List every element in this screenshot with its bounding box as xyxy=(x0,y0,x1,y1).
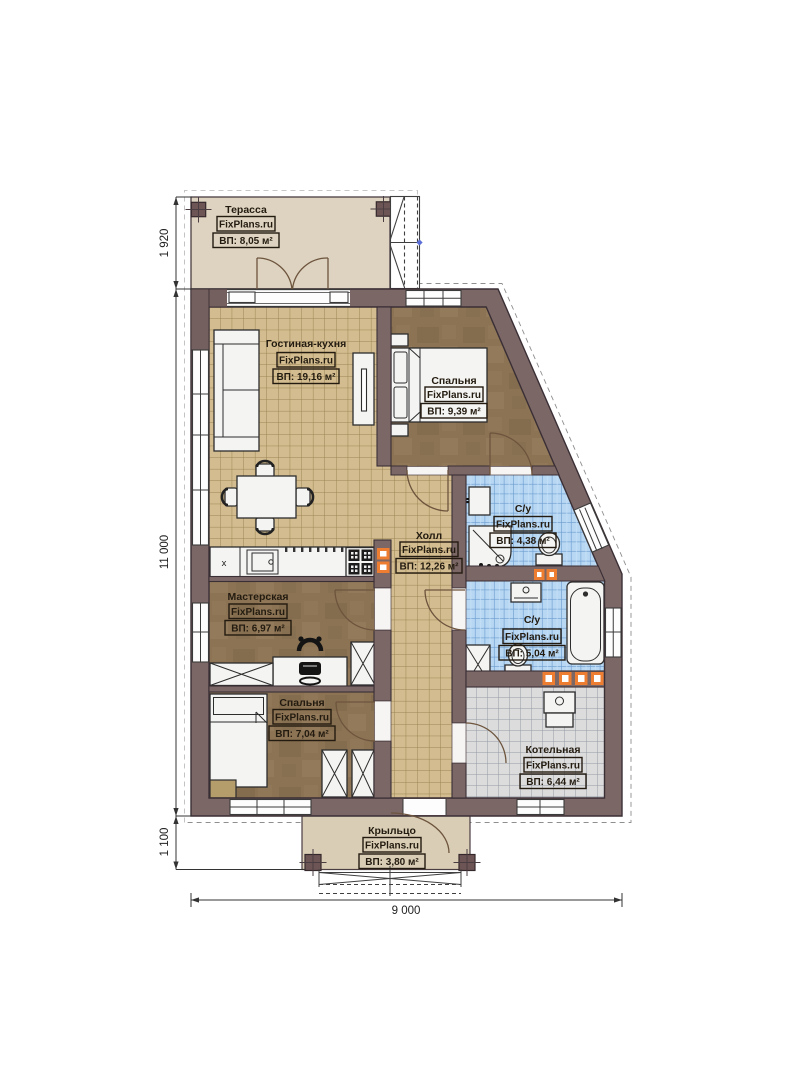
svg-text:FixPlans.ru: FixPlans.ru xyxy=(526,761,580,772)
svg-text:Крыльцо: Крыльцо xyxy=(368,825,416,837)
svg-text:ВП: 5,04 м²: ВП: 5,04 м² xyxy=(505,649,559,660)
svg-text:1 920: 1 920 xyxy=(159,229,171,258)
svg-text:ВП: 9,39 м²: ВП: 9,39 м² xyxy=(427,407,481,418)
svg-text:ВП: 6,44 м²: ВП: 6,44 м² xyxy=(526,777,580,788)
svg-text:ВП: 7,04 м²: ВП: 7,04 м² xyxy=(275,729,329,740)
svg-text:FixPlans.ru: FixPlans.ru xyxy=(365,841,419,852)
svg-text:ВП: 8,05 м²: ВП: 8,05 м² xyxy=(219,236,273,247)
svg-text:Котельная: Котельная xyxy=(526,744,581,756)
svg-text:11 000: 11 000 xyxy=(159,535,171,569)
svg-text:Спальня: Спальня xyxy=(431,375,476,387)
svg-text:FixPlans.ru: FixPlans.ru xyxy=(279,356,333,367)
svg-text:С/у: С/у xyxy=(524,614,541,626)
svg-text:FixPlans.ru: FixPlans.ru xyxy=(496,520,550,531)
svg-text:Мастерская: Мастерская xyxy=(227,591,288,603)
svg-text:Спальня: Спальня xyxy=(279,697,324,709)
svg-text:ВП: 19,16 м²: ВП: 19,16 м² xyxy=(276,372,336,383)
svg-text:С/у: С/у xyxy=(515,503,532,515)
svg-text:ВП: 6,97 м²: ВП: 6,97 м² xyxy=(231,624,285,635)
svg-text:1 100: 1 100 xyxy=(159,828,171,857)
svg-text:FixPlans.ru: FixPlans.ru xyxy=(275,713,329,724)
svg-text:Терасса: Терасса xyxy=(225,204,267,216)
svg-text:ВП: 4,38 м²: ВП: 4,38 м² xyxy=(496,536,550,547)
svg-text:Холл: Холл xyxy=(416,530,442,542)
svg-text:FixPlans.ru: FixPlans.ru xyxy=(219,220,273,231)
svg-text:FixPlans.ru: FixPlans.ru xyxy=(427,390,481,401)
svg-text:x: x xyxy=(222,558,227,569)
svg-text:ВП: 12,26 м²: ВП: 12,26 м² xyxy=(399,562,459,573)
svg-text:ВП: 3,80 м²: ВП: 3,80 м² xyxy=(365,857,419,868)
svg-text:FixPlans.ru: FixPlans.ru xyxy=(402,545,456,556)
svg-text:9 000: 9 000 xyxy=(392,905,421,917)
svg-text:Гостиная-кухня: Гостиная-кухня xyxy=(266,338,346,350)
svg-text:FixPlans.ru: FixPlans.ru xyxy=(231,607,285,618)
svg-text:FixPlans.ru: FixPlans.ru xyxy=(505,632,559,643)
